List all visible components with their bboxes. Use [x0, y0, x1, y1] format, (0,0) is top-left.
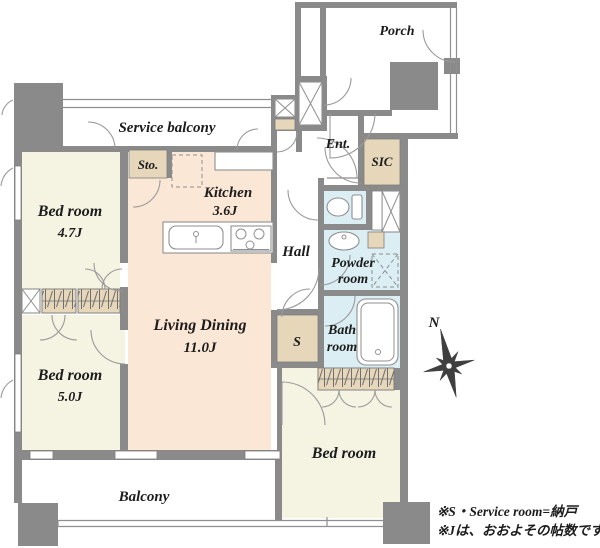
service-room-label: S [293, 335, 301, 350]
footnote-jou: ※Jは、おおよその帖数です [437, 523, 600, 538]
door-arc [288, 190, 318, 220]
bath-room-label-1: Bath [327, 323, 356, 338]
footnote-service-room: ※S・Service room=納戸 [437, 504, 580, 519]
bedroom-47-floor [22, 152, 120, 289]
kitchen-sink [169, 226, 223, 249]
floor-plan-svg: N Porch Service balcony Sto. Kitchen 3.6… [0, 0, 600, 548]
closet [42, 289, 76, 313]
window [245, 451, 280, 459]
shaft-box [275, 99, 295, 117]
footnotes: ※S・Service room=納戸 ※Jは、おおよその帖数です [437, 504, 600, 538]
living-dining-size-label: 11.0J [184, 340, 217, 356]
window [115, 451, 157, 459]
shaft-box [22, 289, 40, 313]
living-dining-label: Living Dining [153, 317, 247, 334]
kitchen-size-label: 3.6J [212, 204, 239, 219]
sic-label: SIC [372, 154, 393, 169]
service-balcony-label: Service balcony [118, 120, 215, 136]
bedroom-47-label: Bed room [37, 203, 102, 220]
bedroom-50-label: Bed room [37, 367, 102, 384]
bathtub [357, 299, 398, 365]
door-arc [324, 78, 351, 105]
washbasin [329, 232, 359, 250]
powder-room-label-1: Powder [331, 256, 375, 271]
bath-room-label-2: room [327, 340, 357, 355]
entry-step [275, 119, 295, 130]
balcony-label: Balcony [118, 489, 170, 505]
window [15, 166, 21, 220]
kitchen-label: Kitchen [203, 185, 252, 201]
closet [318, 368, 394, 390]
counter-box [368, 232, 384, 248]
door-arc [88, 122, 115, 149]
shaft-box [299, 82, 322, 125]
window [15, 354, 21, 432]
meter-box [372, 191, 382, 230]
door-arc [277, 132, 297, 152]
kitchen-upper-counter [215, 152, 273, 170]
closet [78, 289, 120, 313]
entrance-label: Ent. [325, 137, 351, 152]
compass-rose [424, 329, 475, 397]
storage-label: Sto. [138, 157, 159, 172]
shaft-box [382, 191, 400, 232]
hall-label: Hall [281, 244, 310, 260]
floor-plan: N Porch Service balcony Sto. Kitchen 3.6… [0, 0, 600, 548]
bedroom-main-floor [282, 368, 400, 518]
window [30, 451, 53, 459]
casement-window-arc [1, 380, 13, 398]
bedroom-main-label: Bed room [311, 445, 376, 462]
bedroom-50-size-label: 5.0J [58, 390, 84, 405]
door-arc [277, 268, 319, 310]
stove [231, 226, 271, 251]
porch-label: Porch [380, 24, 415, 39]
powder-room-label-2: room [338, 272, 368, 287]
bedroom-47-size-label: 4.7J [57, 226, 84, 241]
compass-north-label: N [428, 315, 441, 331]
casement-window-arc [2, 100, 13, 115]
casement-window-arc [1, 168, 13, 186]
